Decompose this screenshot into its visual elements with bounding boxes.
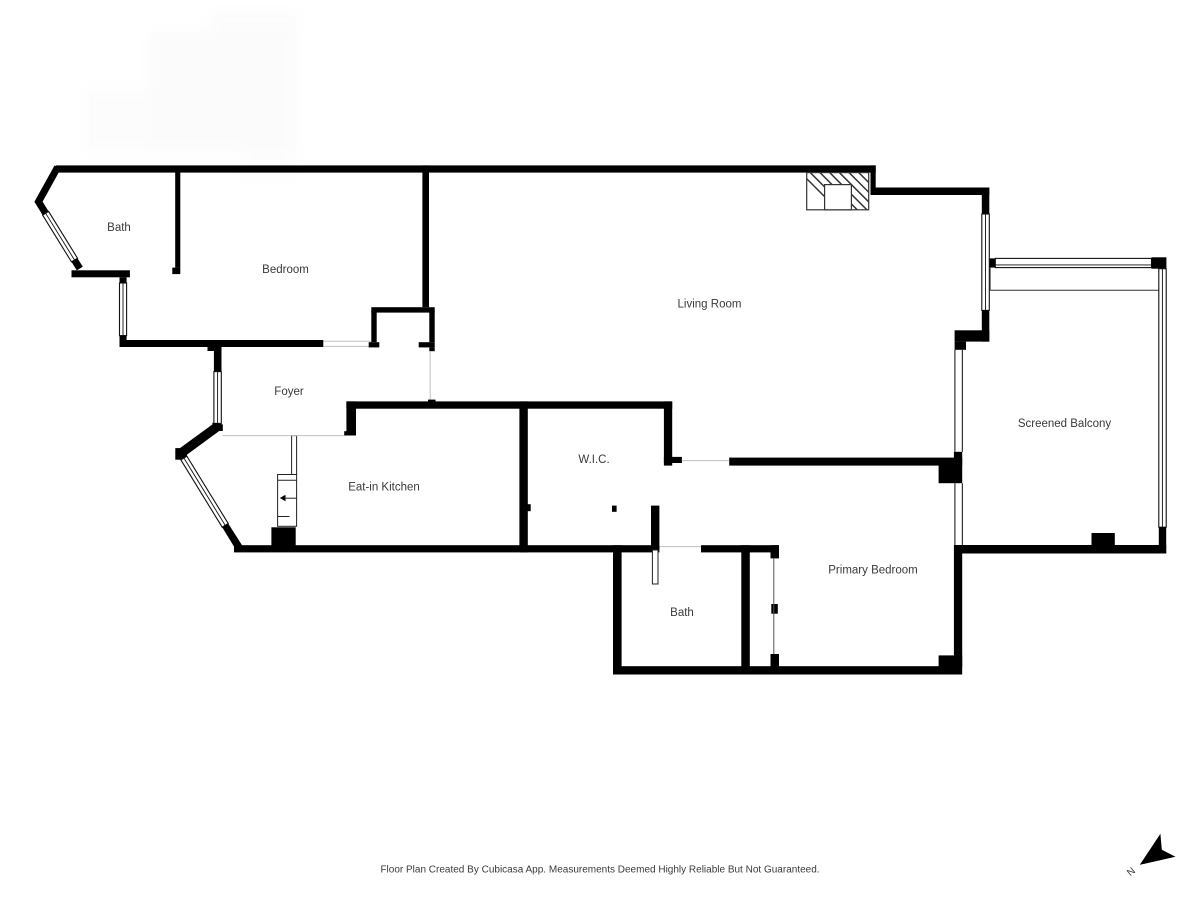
svg-text:Bath: Bath bbox=[107, 222, 131, 234]
svg-text:Eat-in Kitchen: Eat-in Kitchen bbox=[348, 482, 420, 494]
svg-text:Living Room: Living Room bbox=[678, 298, 742, 310]
svg-text:Foyer: Foyer bbox=[274, 386, 304, 398]
svg-text:Floor Plan Created By Cubicasa: Floor Plan Created By Cubicasa App. Meas… bbox=[380, 865, 819, 876]
svg-text:W.I.C.: W.I.C. bbox=[578, 454, 609, 466]
svg-text:Bath: Bath bbox=[670, 607, 694, 619]
svg-text:Bedroom: Bedroom bbox=[262, 264, 309, 276]
svg-text:Primary Bedroom: Primary Bedroom bbox=[828, 565, 917, 577]
svg-text:Screened Balcony: Screened Balcony bbox=[1018, 418, 1112, 430]
